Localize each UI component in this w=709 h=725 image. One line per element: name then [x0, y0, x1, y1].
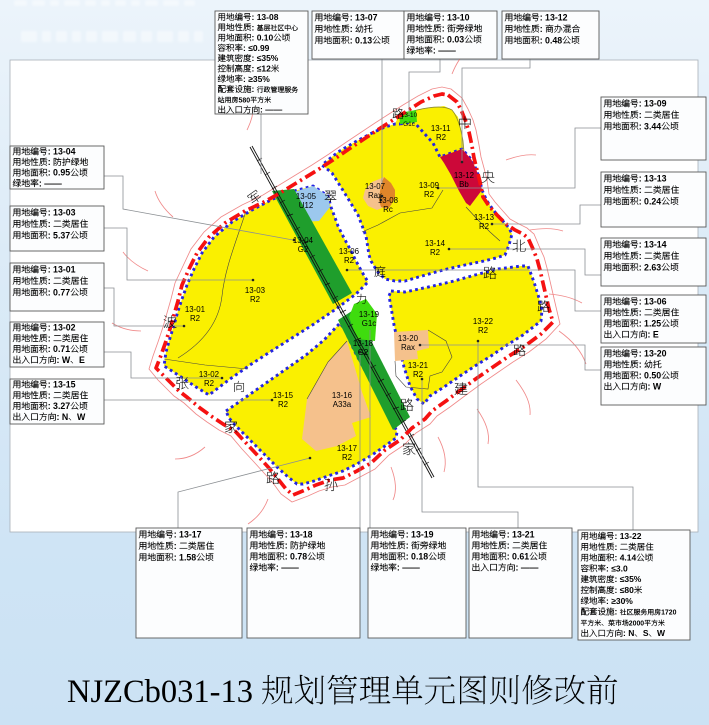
- svg-text:R2: R2: [342, 453, 352, 462]
- svg-text:: 13-13: : 13-13: [639, 174, 667, 184]
- svg-text:: 13-21: : 13-21: [507, 530, 535, 540]
- svg-text:13-06: 13-06: [339, 247, 360, 256]
- svg-text:: 0.71: : 0.71: [48, 344, 71, 354]
- svg-text::: :: [507, 541, 512, 551]
- svg-text:W: W: [657, 628, 666, 638]
- svg-text::: :: [285, 541, 290, 551]
- svg-text::: :: [48, 276, 53, 286]
- svg-text:: E: : E: [648, 330, 659, 340]
- svg-text:: ——: : ——: [39, 178, 62, 188]
- svg-text:R2: R2: [478, 326, 488, 335]
- svg-text:: ——: : ——: [260, 105, 283, 115]
- svg-text:13-19: 13-19: [359, 310, 380, 319]
- svg-text:: 13-08: : 13-08: [252, 12, 279, 22]
- svg-text:: 13-09: : 13-09: [639, 99, 667, 109]
- svg-text:2000: 2000: [629, 620, 644, 627]
- svg-text:: 13-17: : 13-17: [174, 530, 202, 540]
- svg-text::: :: [615, 607, 620, 617]
- svg-text:: 13-10: : 13-10: [442, 13, 470, 23]
- svg-text:: ≥35%: : ≥35%: [243, 74, 270, 84]
- svg-text:: 0.77: : 0.77: [48, 287, 71, 297]
- svg-text:: 13-03: : 13-03: [48, 208, 76, 218]
- svg-text:R2: R2: [479, 222, 489, 231]
- svg-text:: ≤80: : ≤80: [615, 585, 635, 595]
- svg-text:: W: : W: [648, 382, 662, 392]
- svg-text:13-22: 13-22: [473, 317, 493, 326]
- svg-text::: :: [540, 24, 545, 34]
- svg-text:S: S: [643, 628, 649, 638]
- svg-text:: ——: : ——: [276, 563, 299, 573]
- svg-text:13-11: 13-11: [431, 124, 451, 133]
- svg-text:13-14: 13-14: [425, 239, 446, 248]
- svg-text::: :: [48, 157, 53, 167]
- svg-text:13-07: 13-07: [365, 182, 385, 191]
- svg-text:: 2.63: : 2.63: [639, 262, 662, 272]
- svg-text:G1c: G1c: [362, 319, 377, 328]
- svg-text:: W: : W: [57, 355, 71, 365]
- svg-text:13-05: 13-05: [296, 192, 317, 201]
- svg-text:: 4.14: : 4.14: [615, 553, 637, 563]
- svg-text:13-12: 13-12: [454, 171, 474, 180]
- svg-text:: 0.03: : 0.03: [442, 35, 465, 45]
- svg-text:: 13-14: : 13-14: [639, 240, 667, 250]
- svg-text:13-01: 13-01: [185, 305, 205, 314]
- svg-text:: 13-02: : 13-02: [48, 323, 76, 333]
- svg-text:13-21: 13-21: [408, 361, 428, 370]
- svg-text:: N: : N: [57, 412, 69, 422]
- svg-text::: :: [48, 390, 53, 400]
- svg-text:G1c: G1c: [403, 121, 416, 128]
- svg-text::: :: [639, 308, 644, 318]
- svg-text:13-15: 13-15: [273, 391, 294, 400]
- svg-text:: ——: : ——: [516, 563, 539, 573]
- svg-text:: 0.50: : 0.50: [639, 371, 662, 381]
- svg-text:13-08: 13-08: [378, 196, 399, 205]
- svg-text:13-13: 13-13: [474, 213, 495, 222]
- svg-text:R2: R2: [344, 256, 354, 265]
- svg-text:: 13-04: : 13-04: [48, 147, 76, 157]
- svg-text:: ≤35%: : ≤35%: [252, 53, 279, 63]
- svg-text:: ≤0.99: : ≤0.99: [243, 43, 270, 53]
- svg-text:: 1.58: : 1.58: [174, 552, 197, 562]
- svg-text::: :: [639, 251, 644, 261]
- svg-text:A33a: A33a: [333, 400, 352, 409]
- svg-text::: :: [442, 24, 447, 34]
- svg-text::: :: [350, 24, 355, 34]
- svg-text:: 0.95: : 0.95: [48, 168, 71, 178]
- svg-text:R2: R2: [204, 379, 214, 388]
- svg-text:: 13-22: : 13-22: [615, 531, 642, 541]
- svg-text:: 0.48: : 0.48: [540, 35, 563, 45]
- svg-text:Rc: Rc: [383, 205, 393, 214]
- svg-text::: :: [639, 110, 644, 120]
- svg-text:13-18: 13-18: [353, 339, 374, 348]
- svg-text:R2: R2: [190, 314, 200, 323]
- svg-text:R2: R2: [430, 248, 440, 257]
- svg-text:13-09: 13-09: [419, 181, 440, 190]
- svg-text:13-16: 13-16: [332, 391, 353, 400]
- svg-text:: 0.24: : 0.24: [639, 196, 662, 206]
- svg-text::: :: [48, 219, 53, 229]
- svg-text:E: E: [79, 355, 85, 365]
- svg-text:R2: R2: [278, 400, 288, 409]
- svg-text:: 13-07: : 13-07: [350, 13, 378, 23]
- svg-text:R2: R2: [250, 295, 260, 304]
- svg-text:: 1.25: : 1.25: [639, 319, 662, 329]
- svg-text:: ≤12: : ≤12: [252, 64, 272, 74]
- svg-text::: :: [615, 542, 620, 552]
- svg-text::: :: [639, 185, 644, 195]
- svg-text:: ≤3.0: : ≤3.0: [606, 563, 628, 573]
- svg-text:W: W: [77, 412, 86, 422]
- svg-text:: 3.44: : 3.44: [639, 121, 662, 131]
- svg-text:R2: R2: [436, 133, 446, 142]
- svg-text:: 13-20: : 13-20: [639, 349, 667, 359]
- svg-text:: 13-19: : 13-19: [406, 530, 434, 540]
- svg-text:: 0.61: : 0.61: [507, 552, 530, 562]
- svg-text:: 13-06: : 13-06: [639, 297, 667, 307]
- svg-text::: :: [639, 360, 644, 370]
- svg-text:R2: R2: [413, 370, 423, 379]
- svg-text:: 0.13: : 0.13: [350, 35, 373, 45]
- svg-text:Bb: Bb: [459, 180, 469, 189]
- svg-text:: ≤35%: : ≤35%: [615, 574, 642, 584]
- svg-text:: 13-01: : 13-01: [48, 265, 76, 275]
- svg-text:13-03: 13-03: [245, 286, 266, 295]
- svg-text:G2: G2: [358, 348, 369, 357]
- svg-text:: 0.18: : 0.18: [406, 552, 429, 562]
- svg-text:: ——: : ——: [397, 563, 420, 573]
- svg-text:: 0.78: : 0.78: [285, 552, 308, 562]
- svg-text:13-20: 13-20: [398, 334, 419, 343]
- svg-text:NJZCb031-13: NJZCb031-13: [67, 674, 261, 710]
- svg-text::: :: [48, 333, 53, 343]
- svg-text::: :: [252, 22, 257, 32]
- svg-text:13-02: 13-02: [199, 370, 219, 379]
- svg-text:: N: : N: [623, 628, 634, 638]
- svg-text:: 13-18: : 13-18: [285, 530, 313, 540]
- svg-text::: :: [174, 541, 179, 551]
- svg-text:: 13-12: : 13-12: [540, 13, 568, 23]
- svg-text:: ≥30%: : ≥30%: [606, 596, 633, 606]
- svg-text:1720: 1720: [661, 610, 676, 617]
- svg-text::: :: [406, 541, 411, 551]
- svg-text:G2: G2: [298, 245, 309, 254]
- svg-text:13-10: 13-10: [401, 112, 418, 119]
- svg-text:Rax: Rax: [401, 343, 415, 352]
- svg-text:: ——: : ——: [433, 46, 456, 56]
- svg-text:13-04: 13-04: [293, 236, 314, 245]
- svg-text:R2: R2: [424, 190, 434, 199]
- svg-text:: 3.27: : 3.27: [48, 401, 71, 411]
- svg-text::: :: [252, 84, 257, 94]
- svg-text:580: 580: [239, 97, 251, 104]
- svg-text:U12: U12: [299, 201, 313, 210]
- svg-text:: 5.37: : 5.37: [48, 230, 71, 240]
- svg-text:13-17: 13-17: [337, 444, 357, 453]
- svg-text:: 13-15: : 13-15: [48, 380, 76, 390]
- svg-text:: 0.10: : 0.10: [252, 33, 274, 43]
